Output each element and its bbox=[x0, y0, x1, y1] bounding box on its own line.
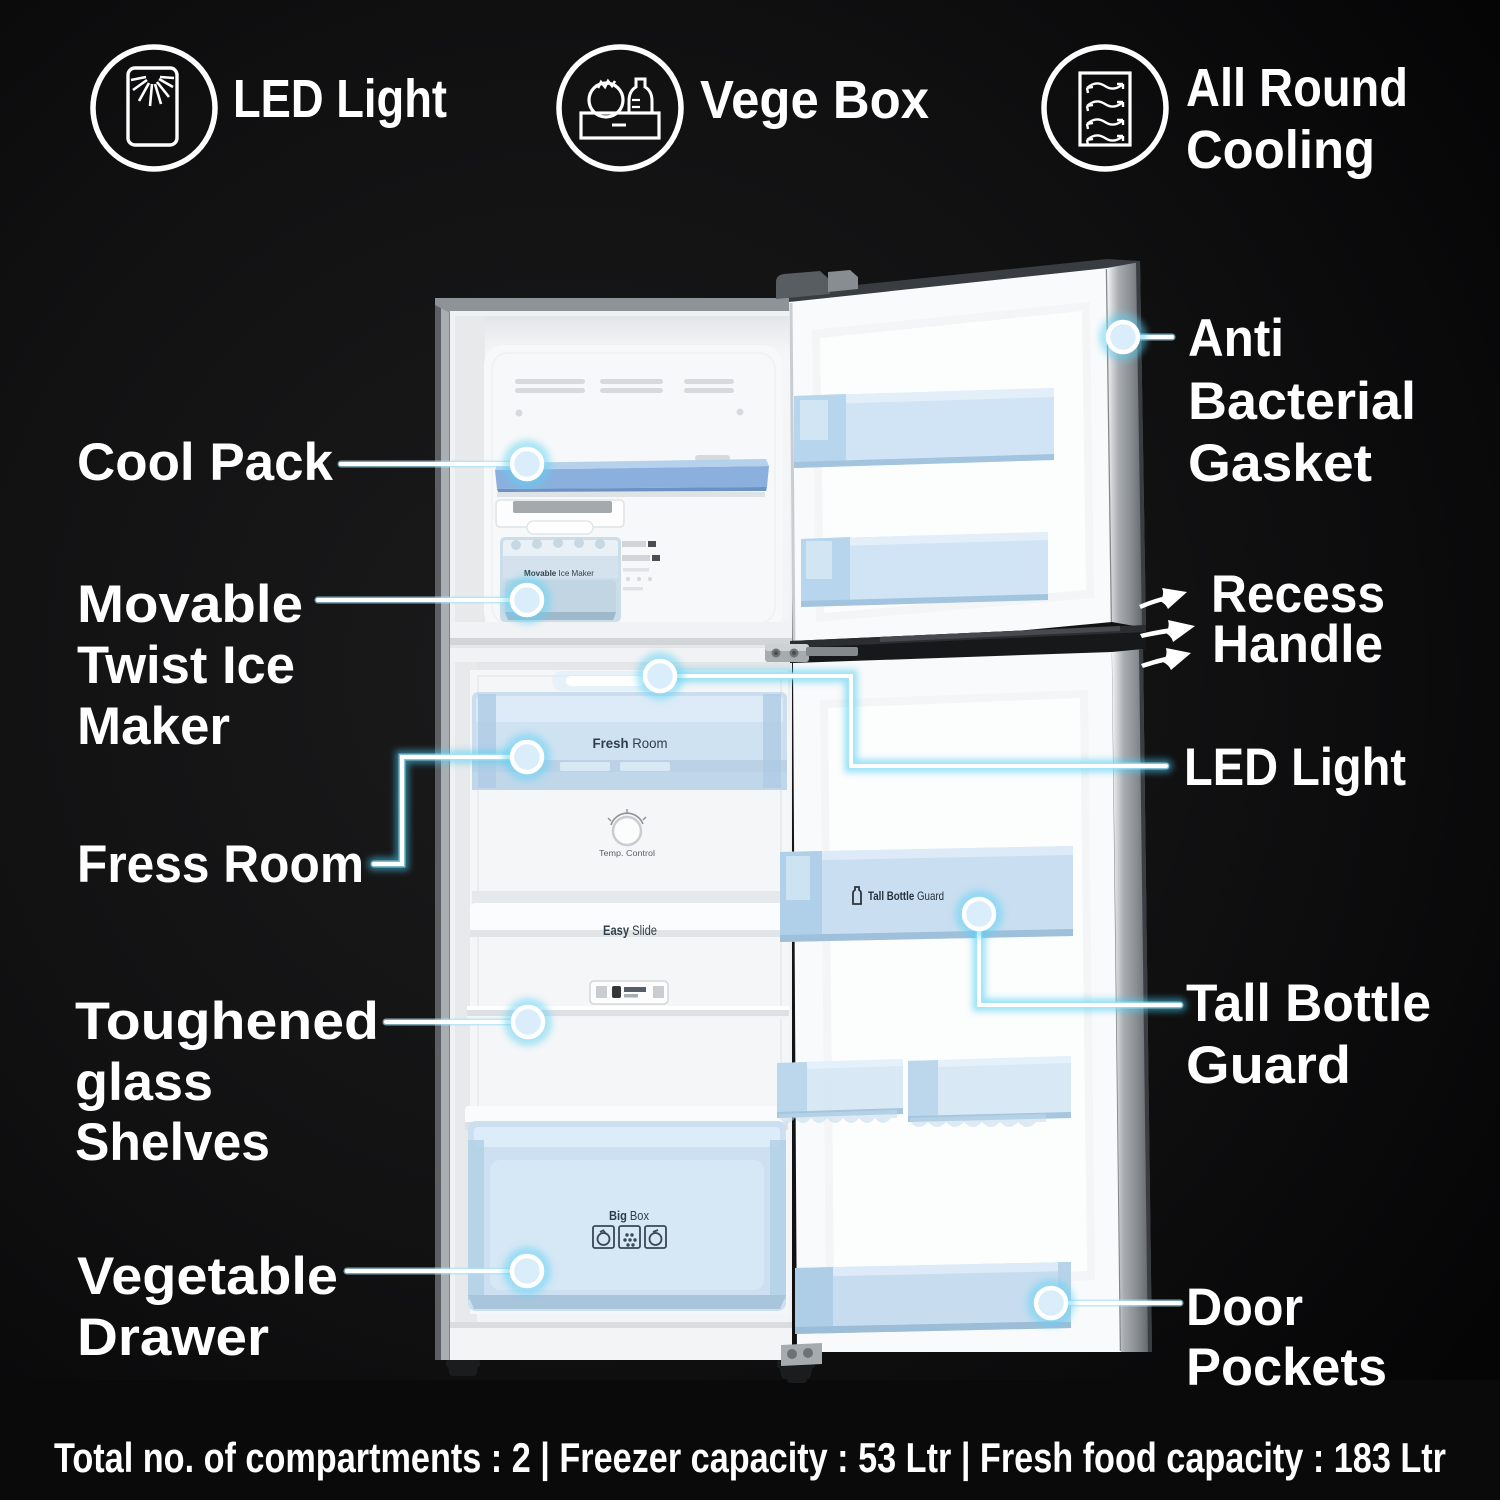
svg-text:Twist Ice: Twist Ice bbox=[77, 636, 295, 695]
svg-text:Total no. of compartments : 2: Total no. of compartments : 2 | Freezer … bbox=[54, 1434, 1446, 1482]
svg-text:Bacterial: Bacterial bbox=[1188, 372, 1416, 431]
svg-text:Cool Pack: Cool Pack bbox=[77, 433, 334, 492]
svg-text:Toughened: Toughened bbox=[75, 992, 379, 1051]
svg-text:Maker: Maker bbox=[77, 697, 230, 756]
svg-text:glass: glass bbox=[75, 1053, 213, 1112]
svg-text:Tall Bottle: Tall Bottle bbox=[1186, 974, 1431, 1033]
svg-text:Handle: Handle bbox=[1212, 615, 1383, 674]
svg-text:Movable Ice Maker: Movable Ice Maker bbox=[524, 568, 594, 578]
svg-text:Door: Door bbox=[1186, 1278, 1303, 1337]
svg-text:Anti: Anti bbox=[1188, 309, 1284, 368]
svg-text:Vegetable: Vegetable bbox=[77, 1247, 338, 1306]
svg-text:Big Box: Big Box bbox=[609, 1209, 650, 1223]
svg-text:Cooling: Cooling bbox=[1186, 120, 1375, 180]
svg-text:Gasket: Gasket bbox=[1188, 434, 1372, 493]
svg-text:Temp. Control: Temp. Control bbox=[599, 848, 655, 858]
svg-text:Shelves: Shelves bbox=[75, 1113, 270, 1172]
svg-text:Vege Box: Vege Box bbox=[700, 70, 929, 130]
svg-text:Pockets: Pockets bbox=[1186, 1338, 1387, 1397]
svg-text:Easy Slide: Easy Slide bbox=[603, 922, 657, 938]
svg-text:All Round: All Round bbox=[1186, 58, 1408, 118]
svg-text:Drawer: Drawer bbox=[77, 1308, 269, 1367]
svg-text:LED Light: LED Light bbox=[1184, 738, 1406, 797]
svg-text:Guard: Guard bbox=[1186, 1036, 1351, 1095]
svg-text:Fresh Room: Fresh Room bbox=[593, 735, 668, 751]
svg-text:LED Light: LED Light bbox=[233, 69, 447, 129]
svg-text:Fress Room: Fress Room bbox=[77, 835, 364, 894]
svg-text:Tall Bottle Guard: Tall Bottle Guard bbox=[868, 889, 944, 903]
svg-text:Movable: Movable bbox=[77, 575, 303, 634]
